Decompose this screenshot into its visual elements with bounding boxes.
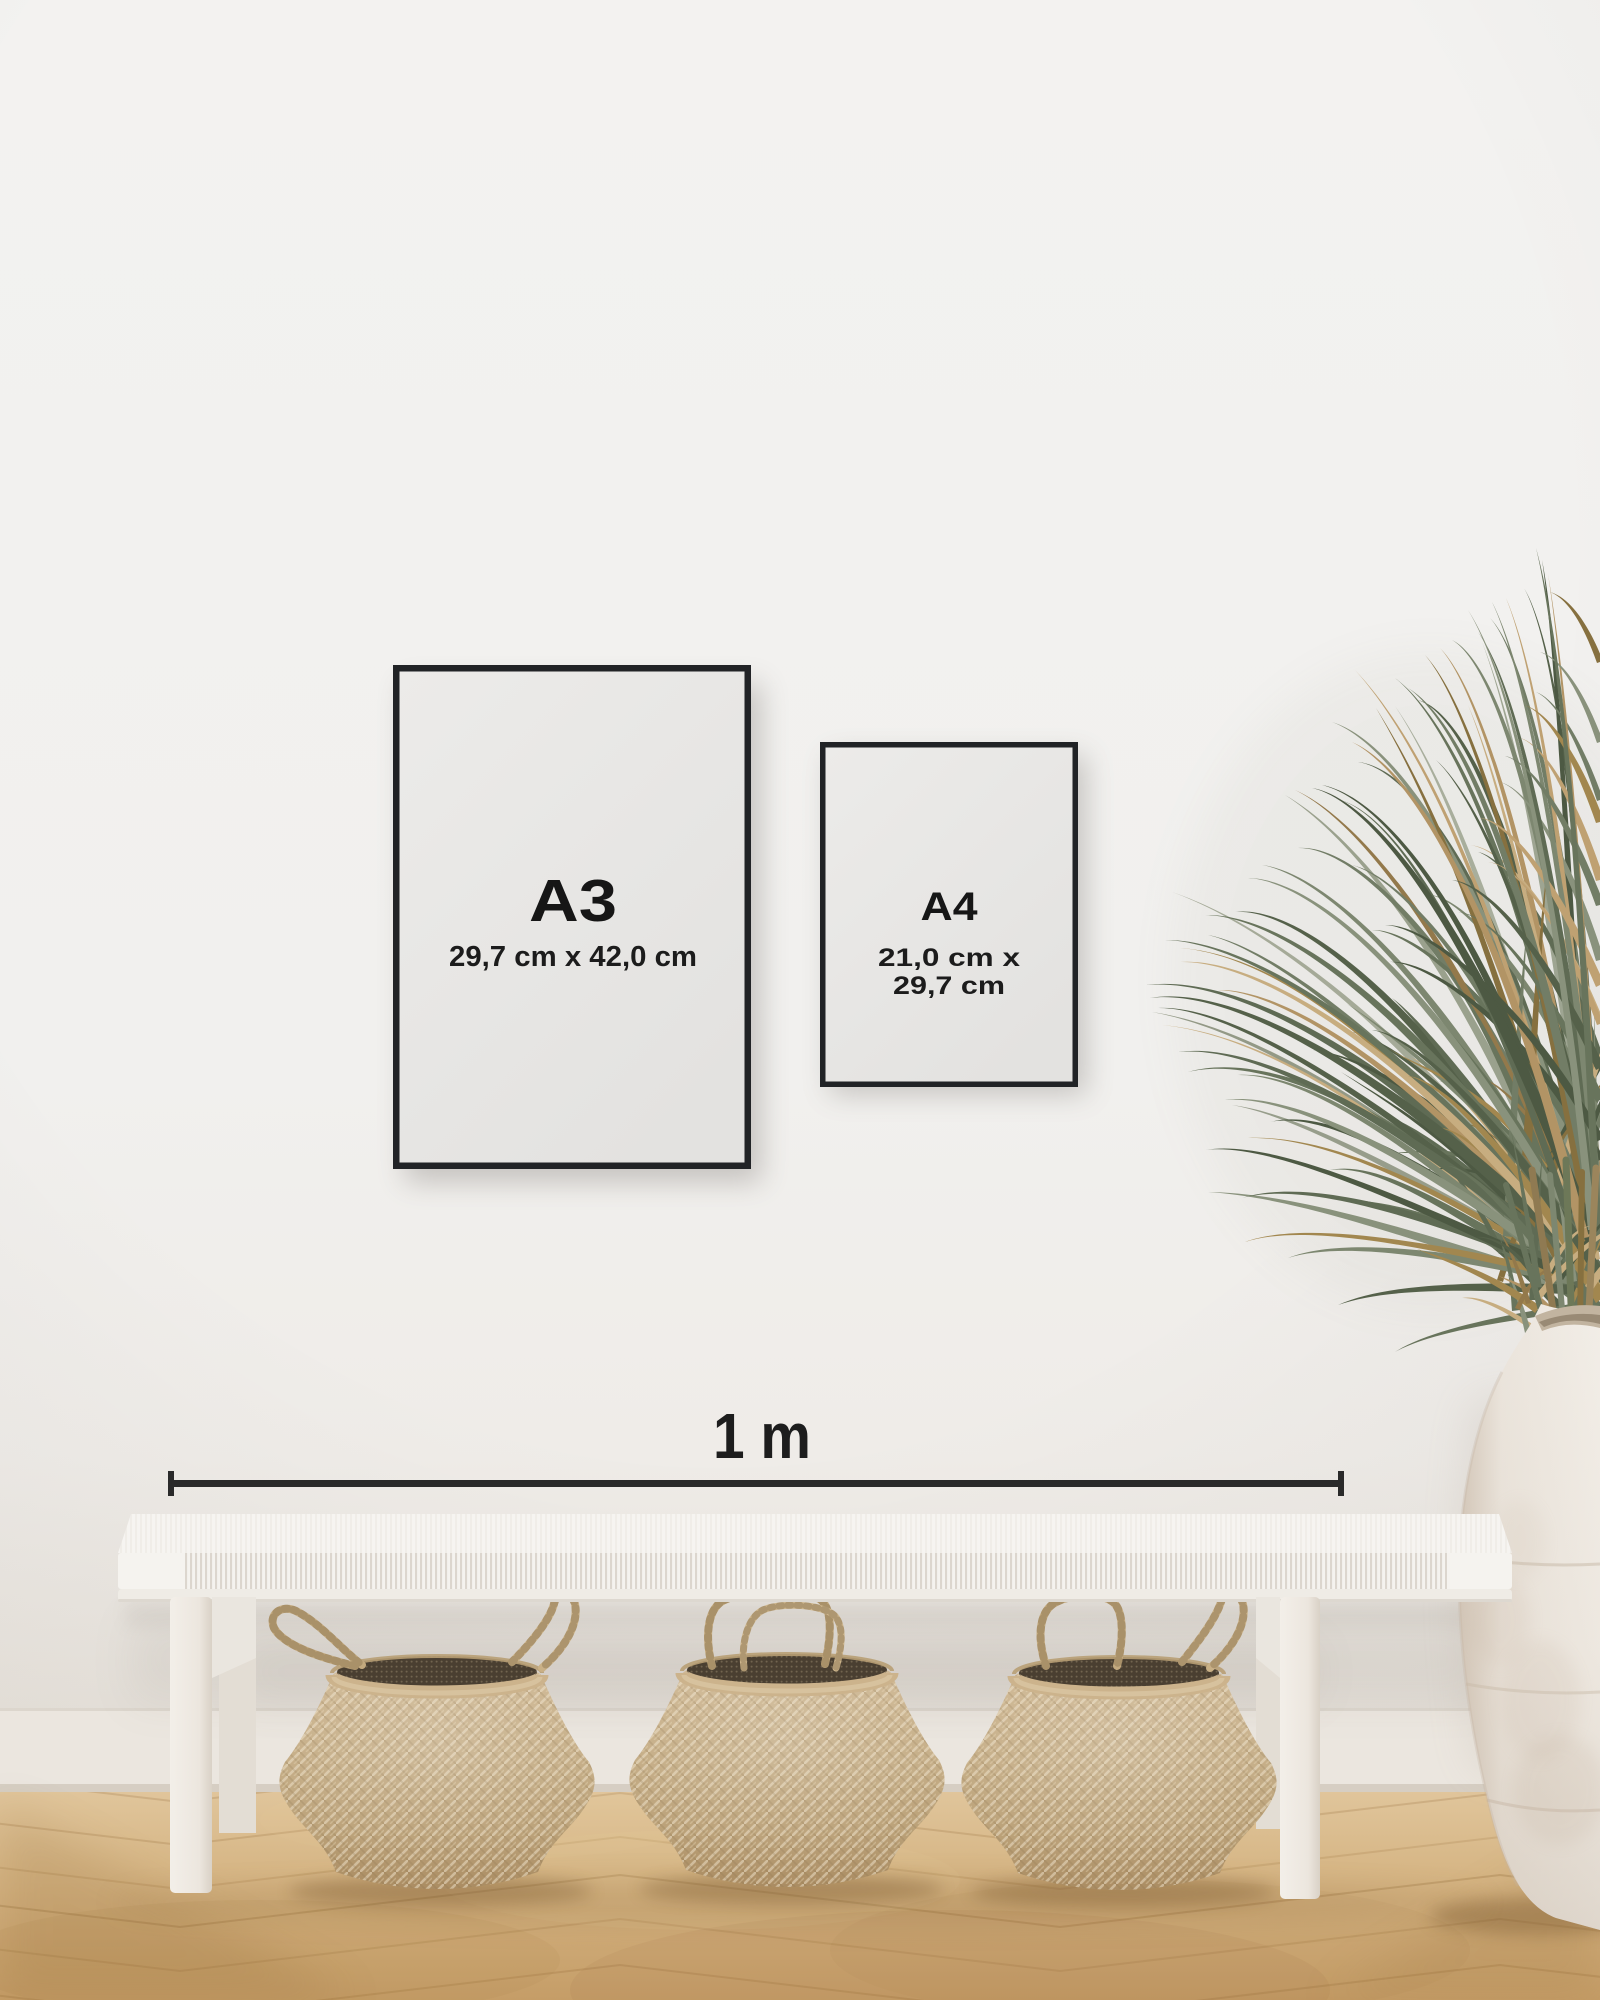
- svg-text:A4: A4: [921, 885, 979, 929]
- svg-text:29,7 cm x 42,0 cm: 29,7 cm x 42,0 cm: [449, 941, 697, 973]
- svg-text:21,0 cm x: 21,0 cm x: [878, 944, 1020, 972]
- svg-text:29,7 cm: 29,7 cm: [893, 972, 1005, 1000]
- svg-text:1 m: 1 m: [713, 1400, 811, 1472]
- svg-text:A3: A3: [529, 868, 617, 934]
